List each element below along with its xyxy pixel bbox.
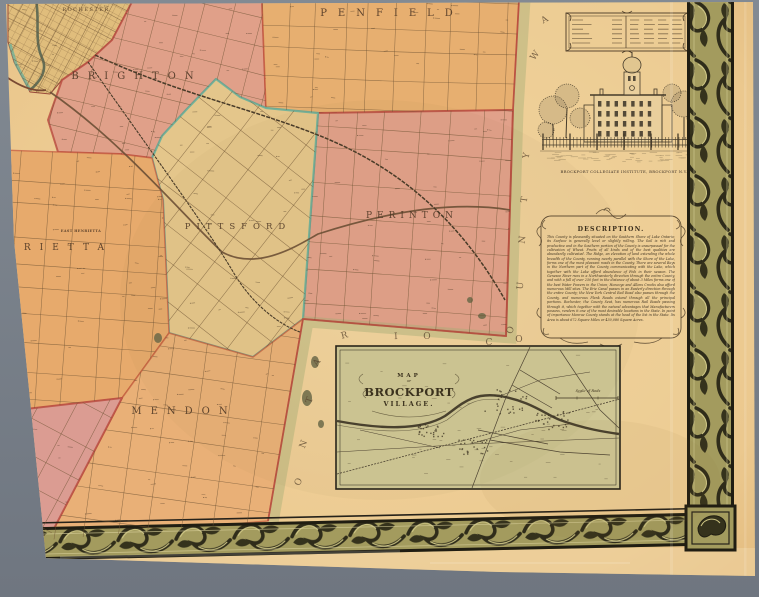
house-dot xyxy=(169,442,170,443)
house-dot xyxy=(78,321,79,322)
house-dot xyxy=(84,190,85,191)
window xyxy=(623,101,626,107)
house-dot xyxy=(191,477,192,478)
window xyxy=(598,111,601,117)
house-dot xyxy=(203,497,204,498)
house-dot xyxy=(451,5,452,6)
label-penfield: PENFIELD xyxy=(320,8,464,19)
house-dot xyxy=(427,3,428,4)
window xyxy=(606,111,609,117)
house-dot xyxy=(131,427,132,428)
house-dot xyxy=(96,172,97,173)
label-east-henrietta: EAST HENRIETTA xyxy=(61,229,101,233)
house-dot xyxy=(242,69,243,70)
house-dot xyxy=(85,513,86,514)
house-dot xyxy=(188,441,189,442)
house-dot xyxy=(155,137,156,138)
window xyxy=(615,121,618,127)
house-dot xyxy=(212,525,213,526)
county-map-scan: ROCHESTER BRIGHTON PENFIELD PERINTON PIT… xyxy=(0,0,759,597)
dome xyxy=(623,57,641,73)
window xyxy=(598,101,601,107)
window xyxy=(640,111,643,117)
house-dot xyxy=(52,197,53,198)
window xyxy=(623,121,626,127)
window xyxy=(615,101,618,107)
window xyxy=(648,111,651,117)
house-dot xyxy=(115,520,116,521)
window xyxy=(606,121,609,127)
house-dot xyxy=(290,6,291,7)
window xyxy=(606,131,609,137)
house-dot xyxy=(108,447,109,448)
house-dot xyxy=(133,69,134,70)
window xyxy=(615,111,618,117)
house-dot xyxy=(150,428,151,429)
house-dot xyxy=(104,5,105,6)
window xyxy=(606,101,609,107)
window xyxy=(631,121,634,127)
house-dot xyxy=(33,429,34,430)
house-dot xyxy=(129,166,130,167)
window xyxy=(631,101,634,107)
house-dot xyxy=(31,340,32,341)
house-dot xyxy=(433,18,434,19)
house-dot xyxy=(167,94,168,95)
map-sheet: ROCHESTER BRIGHTON PENFIELD PERINTON PIT… xyxy=(0,0,759,597)
house-dot xyxy=(60,184,61,185)
window xyxy=(615,131,618,137)
house-dot xyxy=(151,131,152,132)
house-dot xyxy=(200,50,201,51)
window xyxy=(648,121,651,127)
house-dot xyxy=(273,37,274,38)
label-henrietta: NRIETTA xyxy=(7,243,113,253)
house-dot xyxy=(62,139,63,140)
window xyxy=(623,111,626,117)
window xyxy=(598,121,601,127)
right-border-strip xyxy=(687,0,734,507)
house-dot xyxy=(53,229,54,230)
window xyxy=(648,101,651,107)
house-dot xyxy=(147,68,148,69)
house-dot xyxy=(313,89,314,90)
window xyxy=(631,131,634,137)
house-dot xyxy=(57,112,58,113)
house-dot xyxy=(501,119,502,120)
house-dot xyxy=(123,225,124,226)
house-dot xyxy=(77,268,78,269)
house-dot xyxy=(13,173,14,174)
house-dot xyxy=(125,198,126,199)
window xyxy=(640,121,643,127)
house-dot xyxy=(246,33,247,34)
house-dot xyxy=(53,45,54,46)
house-dot xyxy=(16,64,17,65)
house-dot xyxy=(474,54,475,55)
window xyxy=(598,131,601,137)
house-dot xyxy=(215,115,216,116)
window xyxy=(640,101,643,107)
window xyxy=(628,76,631,81)
house-dot xyxy=(153,399,154,400)
window xyxy=(633,76,636,81)
window xyxy=(631,111,634,117)
house-dot xyxy=(53,204,54,205)
window xyxy=(640,131,643,137)
house-dot xyxy=(32,60,33,61)
house-dot xyxy=(325,56,326,57)
house-dot xyxy=(57,379,58,380)
house-dot xyxy=(34,198,35,199)
house-dot xyxy=(99,485,100,486)
